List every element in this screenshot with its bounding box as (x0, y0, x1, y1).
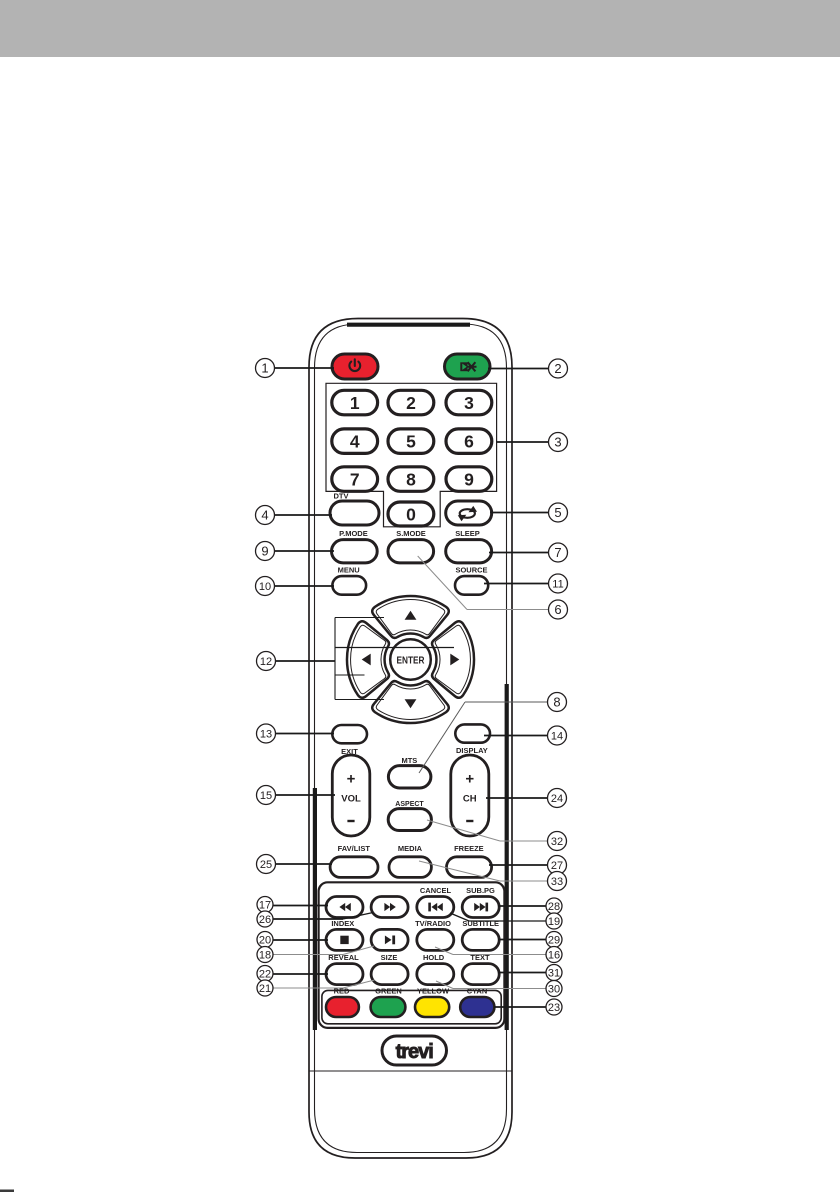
svg-text:+: + (347, 771, 356, 788)
svg-text:7: 7 (350, 469, 360, 489)
svg-text:5: 5 (406, 432, 416, 452)
svg-text:12: 12 (260, 656, 272, 668)
svg-text:30: 30 (548, 984, 560, 996)
svg-text:TV/RADIO: TV/RADIO (415, 919, 451, 928)
svg-text:DISPLAY: DISPLAY (456, 746, 488, 755)
svg-text:31: 31 (548, 968, 560, 980)
svg-text:32: 32 (551, 836, 563, 848)
svg-text:21: 21 (259, 983, 271, 995)
svg-text:29: 29 (548, 935, 560, 947)
svg-text:2: 2 (406, 393, 416, 413)
svg-text:27: 27 (551, 860, 563, 872)
svg-text:INDEX: INDEX (331, 919, 354, 928)
svg-text:14: 14 (551, 731, 563, 743)
svg-text:10: 10 (259, 581, 271, 593)
svg-text:SOURCE: SOURCE (455, 566, 487, 575)
svg-text:MENU: MENU (338, 566, 360, 575)
svg-text:15: 15 (260, 790, 272, 802)
svg-text:CH: CH (463, 794, 477, 805)
svg-text:19: 19 (548, 916, 560, 928)
svg-text:18: 18 (259, 950, 271, 962)
svg-text:CYAN: CYAN (467, 987, 488, 996)
svg-text:9: 9 (261, 544, 268, 559)
svg-text:SIZE: SIZE (381, 953, 398, 962)
svg-text:trevi: trevi (396, 1041, 434, 1063)
svg-text:6: 6 (464, 432, 474, 452)
svg-text:ASPECT: ASPECT (395, 801, 424, 808)
svg-text:1: 1 (261, 361, 268, 376)
svg-text:20: 20 (259, 935, 271, 947)
svg-text:4: 4 (261, 508, 268, 523)
svg-text:P.MODE: P.MODE (339, 529, 368, 538)
svg-text:7: 7 (554, 545, 561, 560)
svg-text:SUB.PG: SUB.PG (466, 886, 495, 895)
svg-text:6: 6 (554, 602, 561, 617)
svg-text:+: + (465, 771, 474, 788)
svg-text:CANCEL: CANCEL (420, 886, 452, 895)
svg-text:GREEN: GREEN (375, 987, 402, 996)
svg-text:13: 13 (260, 729, 272, 741)
svg-text:SLEEP: SLEEP (455, 529, 480, 538)
svg-text:16: 16 (548, 950, 560, 962)
svg-text:22: 22 (259, 969, 271, 981)
svg-text:4: 4 (350, 432, 360, 452)
svg-text:26: 26 (259, 914, 271, 926)
svg-text:VOL: VOL (341, 794, 361, 805)
svg-text:17: 17 (259, 900, 271, 912)
svg-text:24: 24 (551, 793, 563, 805)
svg-text:DTV: DTV (334, 492, 349, 501)
svg-text:8: 8 (406, 469, 416, 489)
svg-text:3: 3 (554, 435, 561, 450)
svg-text:MEDIA: MEDIA (398, 844, 423, 853)
svg-text:25: 25 (260, 859, 272, 871)
svg-text:8: 8 (553, 695, 560, 710)
svg-text:MTS: MTS (401, 756, 417, 765)
svg-text:FAV/LIST: FAV/LIST (338, 844, 371, 853)
svg-text:ENTER: ENTER (397, 655, 425, 667)
svg-text:11: 11 (552, 579, 563, 591)
svg-text:0: 0 (406, 504, 416, 524)
svg-text:5: 5 (554, 505, 561, 520)
svg-text:2: 2 (554, 361, 561, 376)
svg-text:9: 9 (464, 469, 474, 489)
svg-text:23: 23 (548, 1002, 560, 1014)
svg-text:1: 1 (350, 393, 360, 413)
svg-text:33: 33 (551, 876, 563, 888)
svg-text:3: 3 (464, 393, 474, 413)
svg-text:S.MODE: S.MODE (396, 529, 426, 538)
svg-text:28: 28 (548, 901, 560, 913)
svg-text:HOLD: HOLD (423, 953, 445, 962)
svg-text:YELLOW: YELLOW (417, 987, 450, 996)
svg-text:FREEZE: FREEZE (454, 844, 484, 853)
